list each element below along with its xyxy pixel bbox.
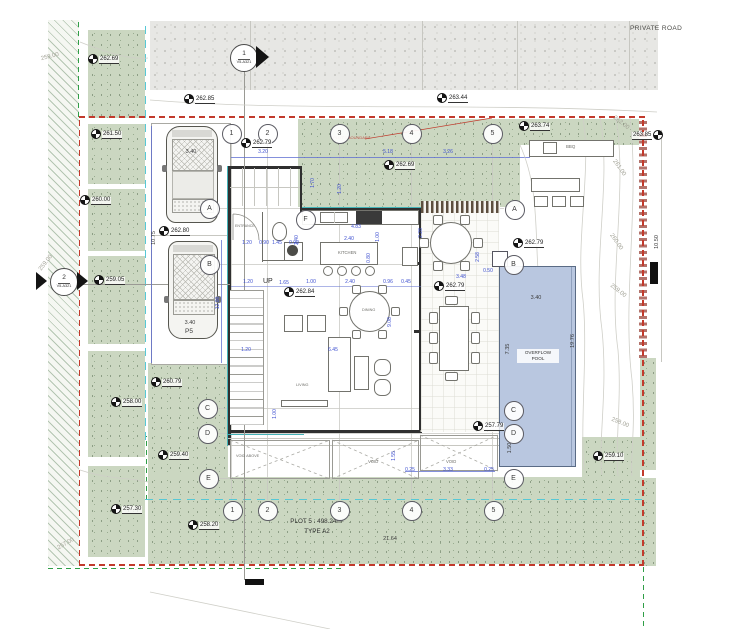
spot-elevation-marker-icon [111, 504, 121, 514]
spot-elevation-value: 262.84 [295, 289, 315, 298]
section-sheet: V5-A321 [57, 284, 72, 289]
grid-bubble-3: 3 [330, 501, 350, 521]
car-mirror [164, 296, 169, 303]
section-arrow-icon [36, 272, 47, 290]
toilet [272, 222, 287, 241]
dining-chair [391, 307, 400, 316]
private-road-label: PRIVATE ROAD [630, 25, 682, 32]
dimension-label: 6.45 [328, 347, 338, 353]
grid-bubble-c: C [504, 401, 524, 421]
dimension-label: 1.00 [375, 232, 381, 242]
tv-console [281, 400, 328, 407]
outdoor-dining-chair [429, 312, 438, 324]
outdoor-dining-chair [471, 332, 480, 344]
parking-stall-label: P5 [185, 328, 193, 335]
spot-elevation-marker-icon [653, 130, 663, 140]
void-above-label: VOID ABOVE [236, 454, 259, 458]
dimension-label: 1.65 [279, 280, 289, 286]
dimension-label: 4.83 [351, 224, 361, 230]
section-target-bar [245, 579, 264, 585]
bar-stool [323, 266, 333, 276]
dimension-label: 1.70 [310, 178, 316, 188]
grid-bubble-2: 2 [258, 501, 278, 521]
outdoor-dining-chair [471, 352, 480, 364]
boundary-pier-bar [650, 262, 658, 284]
bar-stool [337, 266, 347, 276]
grid-bubble-e: E [504, 469, 524, 489]
spot-elevation-marker-icon [111, 397, 121, 407]
kitchen-label: KITCHEN [338, 250, 356, 255]
bbq-stool [552, 196, 566, 207]
cooktop [356, 211, 382, 224]
bbq-stool [570, 196, 584, 207]
bbq-sink [543, 142, 557, 154]
section-marker-2: 2 V5-A321 [50, 268, 78, 296]
dimension-label: 0.45 [401, 279, 411, 285]
dimension-label: 3.40 [186, 149, 197, 155]
spot-elevation: 262.79 [434, 281, 465, 291]
section-arrow-icon [256, 46, 269, 68]
dimension-label: 1.45 [272, 240, 282, 246]
dimension-label: 7.35 [505, 344, 511, 355]
grid-bubble-d: D [504, 424, 524, 444]
dimension-label: 10.75 [151, 231, 157, 245]
spot-elevation-marker-icon [519, 121, 529, 131]
spot-elevation: 262.85 [184, 94, 215, 104]
spot-elevation: 257.30 [111, 504, 142, 514]
dimension-label: 2.40 [344, 236, 354, 242]
spot-elevation-value: 262.79 [252, 140, 272, 149]
dimension-label: 1.00 [306, 279, 316, 285]
spot-elevation: 257.79 [473, 421, 504, 431]
section-number: 2 [58, 275, 70, 284]
dimension-label: 0.90 [289, 240, 299, 246]
dining-chair [378, 285, 387, 294]
spot-elevation-marker-icon [159, 226, 169, 236]
spot-elevation: 263.74 [519, 121, 550, 131]
spot-elevation-marker-icon [80, 195, 90, 205]
car-hood [172, 130, 212, 137]
coffee-table [354, 356, 369, 390]
spot-elevation-value: 258.20 [199, 522, 219, 531]
refrigerator [402, 247, 418, 266]
outdoor-round-table [430, 222, 472, 264]
dining-label: DINING [362, 308, 375, 312]
bbq-label: BBQ [566, 144, 575, 149]
car-roof [172, 171, 214, 199]
car-windshield [173, 300, 215, 315]
spot-elevation-value: 262.85 [195, 96, 215, 105]
staircase [230, 290, 264, 425]
spot-elevation-value: 263.44 [448, 95, 468, 104]
dimension-label: 19.76 [570, 334, 576, 348]
dining-chair [352, 285, 361, 294]
pool-label-line2: POOL [517, 356, 559, 362]
outdoor-chair [433, 215, 443, 225]
spot-elevation-value: 263.85 [632, 132, 652, 141]
spot-elevation-value: 257.79 [484, 423, 504, 432]
spot-elevation: 259.10 [593, 451, 624, 461]
lounge-chair [374, 359, 391, 376]
entrance-label: ENTRANCE [235, 224, 255, 228]
spot-elevation-value: 259.10 [604, 453, 624, 462]
dining-chair [339, 307, 348, 316]
grid-bubble-b: B [504, 255, 524, 275]
spot-elevation-marker-icon [434, 281, 444, 291]
dimension-label: 3.48 [456, 274, 466, 280]
void-area [230, 440, 330, 479]
spot-elevation: 260.00 [80, 195, 111, 205]
dining-chair [352, 330, 361, 339]
dimension-label: 1.50 [507, 443, 513, 454]
grid-bubble-d: D [198, 424, 218, 444]
spot-elevation: 261.50 [91, 129, 122, 139]
spot-elevation-value: 258.00 [122, 399, 142, 408]
outdoor-chair [473, 238, 483, 248]
grid-bubble-a: A [200, 199, 220, 219]
spot-elevation: 262.69 [88, 54, 119, 64]
dimension-label: 0.96 [383, 279, 393, 285]
spot-elevation: 263.85 [632, 130, 663, 140]
outdoor-chair [460, 261, 470, 271]
shower-drain [287, 245, 298, 256]
dimension-label: 0.25 [405, 467, 415, 473]
dimension-label: 1.20 [243, 279, 253, 285]
car-mirror [217, 165, 222, 172]
car-rear [173, 245, 213, 252]
void-area [420, 435, 498, 471]
spot-elevation-value: 257.30 [122, 506, 142, 515]
armchair [284, 315, 303, 332]
spot-elevation-value: 260.00 [91, 197, 111, 206]
pergola-slats [421, 201, 500, 213]
dimension-label: 0.80 [366, 253, 372, 263]
section-marker-1: 1 V5-A321 [230, 44, 258, 72]
dimension-label: 5.18 [383, 149, 393, 155]
spot-elevation-marker-icon [158, 450, 168, 460]
dimension-label: 21.64 [383, 536, 397, 542]
dimension-label: 3.40 [531, 295, 542, 301]
pool-infinity-edge [571, 267, 572, 466]
living-label: LIVING [296, 383, 308, 387]
spot-elevation-value: 262.69 [395, 162, 415, 171]
dimension-label: 1.00 [272, 409, 278, 419]
spot-elevation-marker-icon [473, 421, 483, 431]
spot-elevation-marker-icon [188, 520, 198, 530]
spot-elevation: 262.79 [513, 238, 544, 248]
grid-bubble-4: 4 [402, 124, 422, 144]
outdoor-dining-chair [445, 372, 458, 381]
plot-type: TYPE A2 [270, 528, 364, 535]
dimension-label: 3.33 [443, 467, 453, 473]
grid-bubble-5: 5 [483, 124, 503, 144]
grid-bubble-1: 1 [223, 501, 243, 521]
dimension-label: 0.50 [483, 268, 493, 274]
bar-stool [365, 266, 375, 276]
dining-chair [378, 330, 387, 339]
spot-elevation: 262.84 [284, 287, 315, 297]
spot-elevation-marker-icon [593, 451, 603, 461]
spot-elevation-value: 260.79 [162, 379, 182, 388]
dimension-label: 10.50 [654, 235, 660, 249]
outdoor-dining-chair [445, 296, 458, 305]
dimension-label: 3.20 [258, 149, 268, 155]
spot-elevation-marker-icon [241, 138, 251, 148]
spot-elevation-value: 259.05 [105, 277, 125, 286]
site-plan-drawing: OVERFLOW POOL VOID ABOVE VOID VOID BBQ P… [0, 0, 750, 629]
outdoor-chair [419, 238, 429, 248]
section-arrow-icon [77, 272, 88, 290]
bbq-bench [531, 178, 580, 192]
dimension-label: 1.20 [337, 184, 343, 194]
dimension-label: 2.28 [418, 228, 424, 238]
grid-bubble-b: B [200, 255, 220, 275]
spot-elevation-value: 263.74 [530, 123, 550, 132]
dimension-label: 1.20 [241, 347, 251, 353]
dimension-label: 2.58 [475, 252, 481, 262]
dimension-label: 1.55 [391, 451, 397, 461]
lounge-chair [374, 379, 391, 396]
section-number: 1 [238, 51, 250, 60]
spot-elevation-marker-icon [284, 287, 294, 297]
dimension-label: 3.40 [185, 320, 196, 326]
spot-elevation-value: 259.40 [169, 452, 189, 461]
grid-bubble-5: 5 [484, 501, 504, 521]
bbq-stool [534, 196, 548, 207]
spot-elevation-value: 261.50 [102, 131, 122, 140]
pool-label: OVERFLOW POOL [517, 349, 559, 363]
grid-bubble-f: F [296, 210, 316, 230]
car-windshield [172, 139, 214, 171]
spot-elevation: 259.05 [94, 275, 125, 285]
spot-elevation: 262.69 [384, 160, 415, 170]
outdoor-dining-table [439, 306, 469, 371]
car-mirror [162, 165, 167, 172]
spot-elevation-marker-icon [437, 93, 447, 103]
dimension-label: 3.26 [443, 149, 453, 155]
up-label: UP [263, 278, 273, 285]
boundary-note-leader [365, 118, 492, 139]
outdoor-dining-chair [429, 352, 438, 364]
sofa [328, 337, 351, 392]
dimension-label: 9.08 [387, 317, 393, 327]
spot-elevation-value: 262.79 [445, 283, 465, 292]
spot-elevation: 262.80 [159, 226, 190, 236]
spot-elevation: 262.79 [241, 138, 272, 148]
bar-stool [351, 266, 361, 276]
outdoor-dining-chair [429, 332, 438, 344]
outdoor-dining-chair [471, 312, 480, 324]
spot-elevation-value: 262.80 [170, 228, 190, 237]
dimension-label: 2.40 [345, 279, 355, 285]
dimension-label: 1.20 [242, 240, 252, 246]
spot-elevation-marker-icon [513, 238, 523, 248]
outdoor-chair [460, 215, 470, 225]
grid-bubble-1: 1 [222, 124, 242, 144]
spot-elevation-marker-icon [384, 160, 394, 170]
armchair [307, 315, 326, 332]
grid-bubble-4: 4 [402, 501, 422, 521]
grid-bubble-c: C [198, 399, 218, 419]
dimension-label: 0.25 [484, 467, 494, 473]
grid-bubble-3: 3 [330, 124, 350, 144]
spot-elevation-marker-icon [88, 54, 98, 64]
outdoor-chair [433, 261, 443, 271]
void-label: VOID [368, 459, 378, 464]
dimension-label: 12.00 [215, 297, 221, 310]
plot-title: PLOT 5 : 498.24m² [270, 518, 364, 525]
spot-elevation: 263.44 [437, 93, 468, 103]
grid-bubble-e: E [199, 469, 219, 489]
spot-elevation-marker-icon [151, 377, 161, 387]
grid-bubble-a: A [505, 200, 525, 220]
spot-elevation: 259.40 [158, 450, 189, 460]
spot-elevation-marker-icon [184, 94, 194, 104]
spot-elevation-value: 262.79 [524, 240, 544, 249]
section-sheet: V5-A321 [237, 60, 252, 65]
dimension-label: 0.90 [259, 240, 269, 246]
void-label: VOID [446, 459, 456, 464]
spot-elevation: 258.20 [188, 520, 219, 530]
spot-elevation: 258.00 [111, 397, 142, 407]
spot-elevation-marker-icon [91, 129, 101, 139]
spot-elevation-marker-icon [94, 275, 104, 285]
kitchen-sink-divider [334, 212, 335, 223]
spot-elevation: 260.79 [151, 377, 182, 387]
spot-elevation-value: 262.69 [99, 56, 119, 65]
